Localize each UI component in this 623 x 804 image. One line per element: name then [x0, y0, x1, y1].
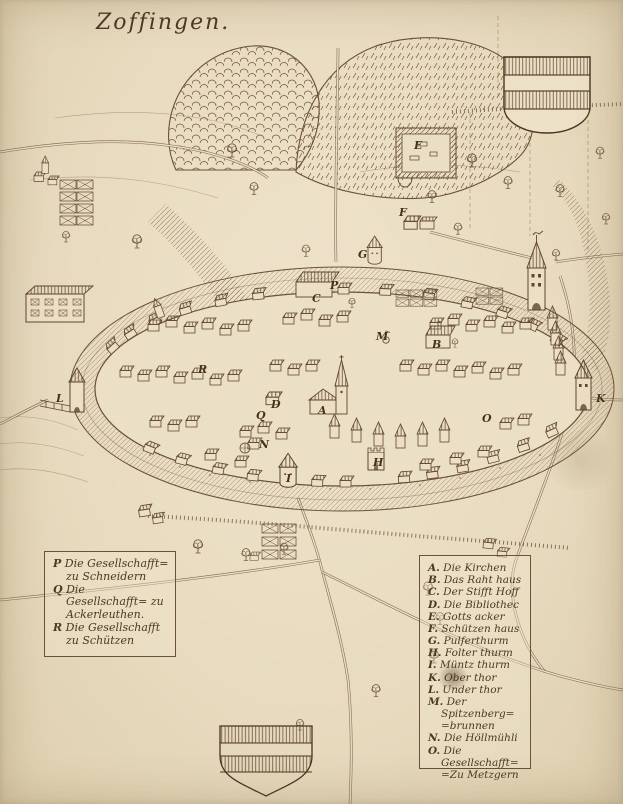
legend-label: Der Stifft Hoff [443, 586, 519, 598]
map-marker-K: K [596, 392, 606, 405]
legend-landmarks: A. Die Kirchen B. Das Raht haus C. Der S… [419, 555, 531, 769]
legend-key: G. [428, 635, 440, 647]
legend-item: Q Die Gesellschafft= zu Ackerleuthen. [53, 584, 169, 622]
legend-key: K. [428, 672, 441, 684]
legend-item: O. Die Gesellschafft= =Zu Metzgern [428, 745, 524, 782]
legend-item: K. Ober thor [428, 672, 524, 684]
parchment-map-page: Zoffingen. A B C D E F G H I K L M N O P… [0, 0, 623, 804]
map-marker-C: C [312, 292, 321, 305]
legend-key: R [53, 621, 62, 634]
map-title: Zoffingen. [96, 10, 230, 35]
legend-label: Die Kirchen [443, 562, 506, 574]
map-marker-B: B [432, 338, 441, 351]
legend-key: L. [428, 684, 439, 696]
legend-label: Der Spitzenberg= =brunnen [441, 696, 514, 732]
legend-label: Müntz thurm [440, 659, 510, 671]
legend-key: Q [53, 583, 63, 596]
legend-label: Pulferthurm [444, 635, 509, 647]
legend-label: Under thor [442, 684, 501, 696]
legend-item: R Die Gesellschafft zu Schützen [53, 622, 169, 648]
under-thor-gate [40, 368, 85, 412]
legend-label: Die Bibliothec [444, 599, 519, 611]
legend-item: E. Gotts acker [428, 611, 524, 623]
legend-item: G. Pulferthurm [428, 635, 524, 647]
town-walls [70, 180, 614, 511]
legend-key: E. [428, 611, 440, 623]
coat-of-arms-top [504, 57, 590, 133]
legend-label: Die Gesellschafft= zu Schneidern [65, 557, 169, 583]
legend-key: F. [428, 623, 438, 635]
legend-label: Folter thurm [445, 647, 513, 659]
map-marker-R: R [198, 363, 207, 376]
legend-item: F. Schützen haus [428, 623, 524, 635]
map-marker-E: E [414, 139, 422, 152]
legend-item: N. Die Höllmühli [428, 732, 524, 744]
legend-item: P Die Gesellschafft= zu Schneidern [53, 558, 169, 584]
legend-label: Die Höllmühli [444, 732, 518, 744]
legend-societies: P Die Gesellschafft= zu Schneidern Q Die… [44, 551, 176, 657]
legend-item: C. Der Stifft Hoff [428, 586, 524, 598]
pulverturm-tower [367, 236, 382, 264]
legend-key: O. [428, 745, 440, 757]
legend-item: M. Der Spitzenberg= =brunnen [428, 696, 524, 733]
legend-label: Ober thor [444, 672, 496, 684]
legend-key: H. [428, 647, 442, 659]
map-marker-M: M [376, 330, 388, 343]
legend-label: Die Gesellschafft= =Zu Metzgern [441, 745, 519, 781]
northeast-gate-tower [527, 231, 546, 310]
legend-label: Schützen haus [441, 623, 519, 635]
map-marker-O: O [482, 412, 492, 425]
garden-plots-south [250, 524, 296, 560]
legend-item: B. Das Raht haus [428, 574, 524, 586]
legend-key: D. [428, 599, 440, 611]
coat-of-arms-bottom [220, 726, 312, 796]
hamlet-northwest [34, 156, 59, 185]
map-marker-D: D [271, 398, 281, 411]
map-marker-L: L [56, 392, 64, 405]
map-marker-G: G [358, 248, 367, 261]
legend-label: Die Gesellschafft zu Schützen [66, 621, 161, 647]
map-marker-H: H [373, 456, 383, 469]
legend-key: M. [428, 696, 443, 708]
legend-label: Das Raht haus [444, 574, 521, 586]
map-marker-N: N [259, 438, 269, 451]
legend-key: A. [428, 562, 440, 574]
map-marker-I: I [286, 472, 291, 485]
legend-item: D. Die Bibliothec [428, 599, 524, 611]
map-marker-F: F [399, 206, 407, 219]
house-outside [138, 504, 153, 517]
legend-item: I. Müntz thurm [428, 659, 524, 671]
legend-key: P [53, 557, 61, 570]
schuetzenhaus-building [404, 216, 437, 229]
legend-key: I. [428, 659, 437, 671]
legend-key: N. [428, 732, 441, 744]
legend-label: Gotts acker [443, 611, 505, 623]
legend-item: H. Folter thurm [428, 647, 524, 659]
garden-plots-west [60, 180, 93, 225]
legend-key: B. [428, 574, 441, 586]
map-marker-Q: Q [256, 409, 266, 422]
map-marker-A: A [318, 404, 327, 417]
legend-key: C. [428, 586, 440, 598]
map-marker-P: P [330, 279, 338, 292]
legend-item: L. Under thor [428, 684, 524, 696]
house-outside [483, 538, 497, 549]
legend-label: Die Gesellschafft= zu Ackerleuthen. [66, 583, 164, 622]
weathercock-icon [533, 231, 543, 235]
legend-item: A. Die Kirchen [428, 562, 524, 574]
cemetery-enclosure [396, 128, 456, 187]
suburb-building-west [26, 286, 93, 322]
